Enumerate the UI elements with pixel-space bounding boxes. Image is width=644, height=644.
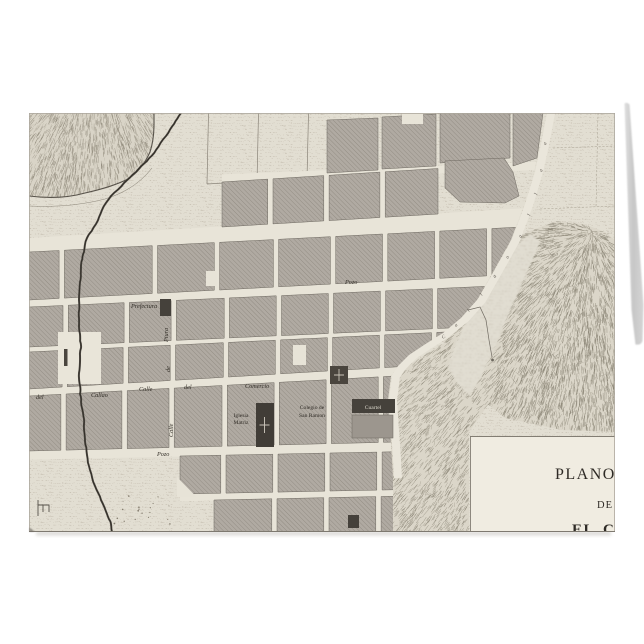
svg-text:Comercio: Comercio: [245, 383, 269, 390]
svg-text:Calle: Calle: [139, 386, 153, 393]
svg-text:de: de: [165, 366, 172, 372]
svg-text:DE: DE: [597, 500, 613, 511]
svg-text:Iglesia: Iglesia: [234, 413, 249, 419]
svg-text:Pozo: Pozo: [156, 451, 169, 458]
svg-text:Callao: Callao: [91, 392, 108, 399]
svg-text:Calle: Calle: [168, 423, 175, 437]
svg-text:Matriz: Matriz: [234, 420, 249, 426]
svg-text:Piura: Piura: [163, 328, 170, 343]
svg-text:Cuartel: Cuartel: [365, 405, 382, 411]
svg-text:del: del: [184, 384, 192, 391]
svg-text:San Ramon: San Ramon: [299, 413, 325, 419]
svg-text:PLANO: PLANO: [555, 466, 616, 483]
svg-text:Colegio de: Colegio de: [300, 405, 325, 411]
svg-text:Prefectura: Prefectura: [130, 303, 157, 310]
svg-text:Pozo: Pozo: [344, 279, 357, 286]
svg-text:del: del: [36, 394, 44, 401]
